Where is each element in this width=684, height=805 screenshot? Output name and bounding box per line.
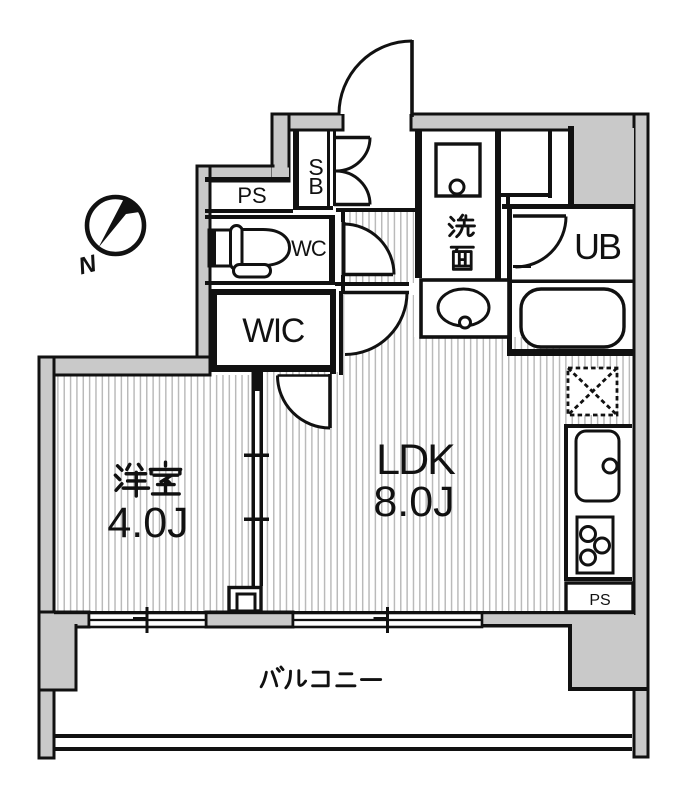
svg-text:LDK: LDK (376, 436, 456, 484)
svg-text:PS: PS (237, 183, 266, 208)
svg-text:4.0J: 4.0J (107, 499, 188, 547)
svg-text:PS: PS (589, 592, 610, 609)
svg-text:8.0J: 8.0J (373, 478, 454, 526)
svg-text:UB: UB (574, 226, 621, 267)
svg-text:WIC: WIC (242, 312, 305, 350)
svg-text:WC: WC (291, 236, 327, 261)
svg-text:B: B (308, 173, 323, 199)
